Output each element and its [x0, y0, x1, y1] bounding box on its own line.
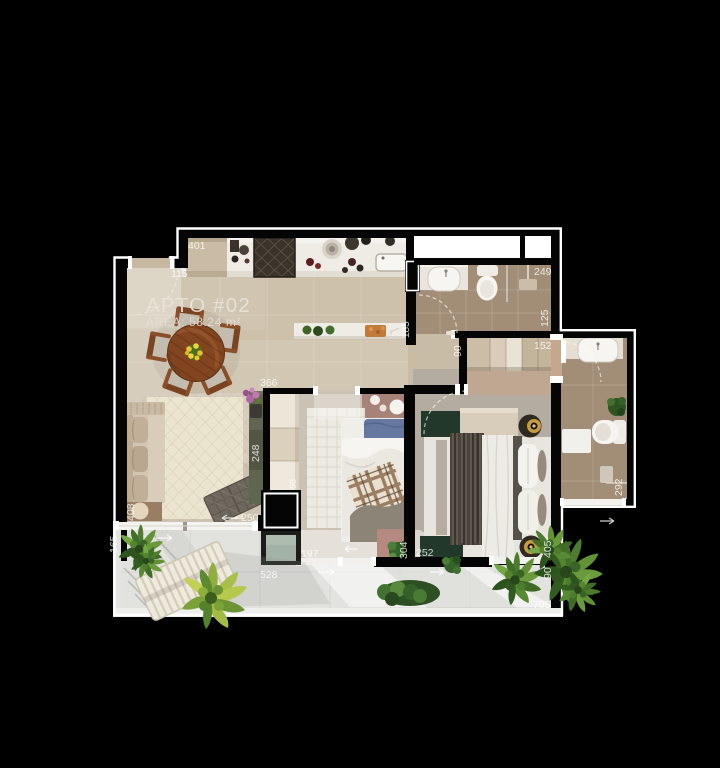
svg-text:401: 401	[188, 240, 206, 252]
svg-text:197: 197	[301, 548, 319, 560]
svg-text:304: 304	[398, 541, 410, 559]
svg-text:ÁREA: 58.24 m²: ÁREA: 58.24 m²	[146, 314, 241, 329]
svg-text:165: 165	[108, 535, 120, 553]
svg-text:528: 528	[260, 569, 278, 581]
svg-text:408: 408	[125, 503, 137, 521]
svg-text:248: 248	[250, 444, 262, 462]
svg-text:366: 366	[260, 377, 278, 389]
svg-text:250: 250	[241, 512, 259, 524]
svg-text:125: 125	[539, 309, 551, 327]
svg-text:252: 252	[416, 547, 434, 559]
svg-text:115: 115	[171, 268, 188, 280]
svg-text:185: 185	[401, 321, 412, 338]
svg-text:90: 90	[542, 567, 554, 579]
svg-text:APTO #02: APTO #02	[146, 294, 251, 317]
svg-text:58: 58	[288, 479, 298, 489]
svg-text:90: 90	[452, 345, 464, 357]
svg-text:152: 152	[534, 340, 552, 352]
svg-text:249: 249	[534, 266, 552, 278]
svg-text:405: 405	[542, 540, 554, 558]
svg-text:795: 795	[533, 599, 551, 611]
svg-text:292: 292	[613, 478, 625, 496]
